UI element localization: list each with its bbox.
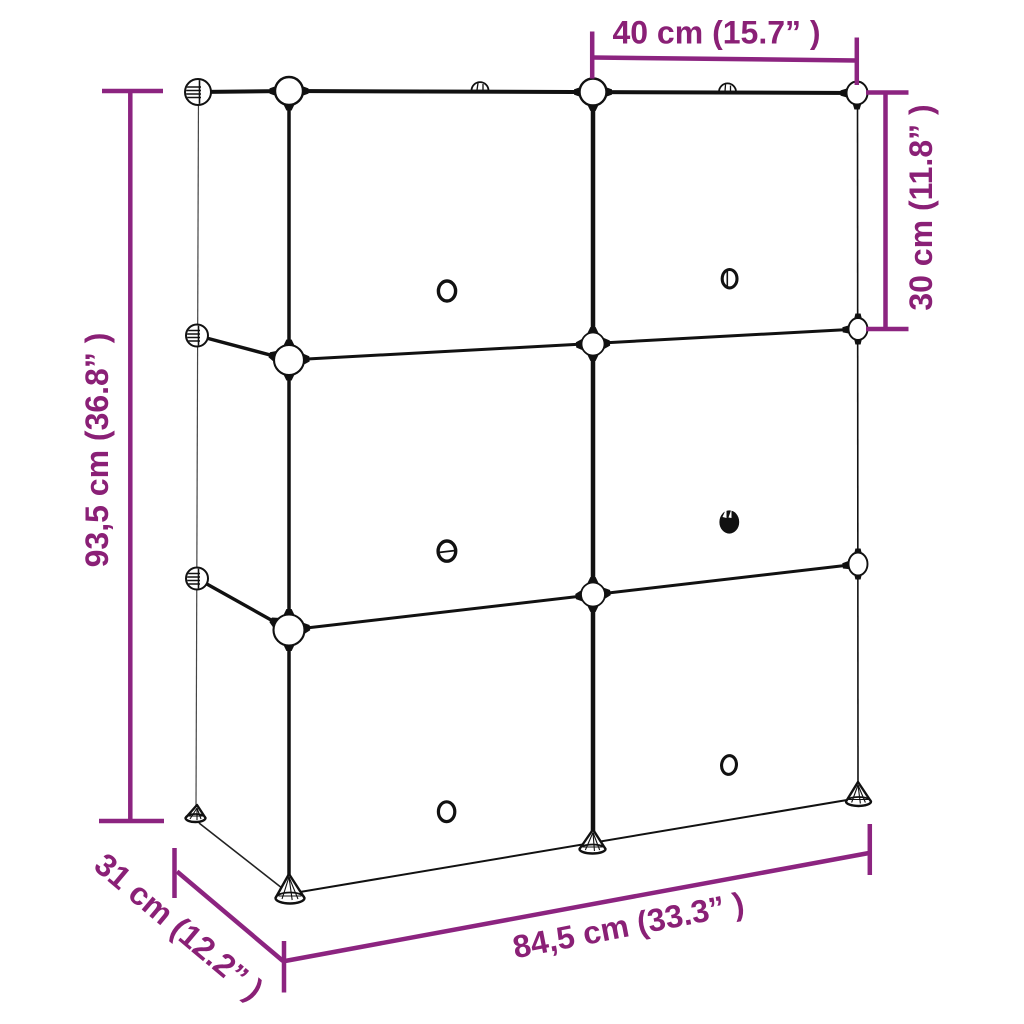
svg-text:30 cm (11.8” ): 30 cm (11.8” ) [903, 104, 939, 310]
svg-text:93,5 cm (36.8” ): 93,5 cm (36.8” ) [79, 333, 115, 568]
svg-text:40 cm (15.7” ): 40 cm (15.7” ) [612, 15, 820, 51]
